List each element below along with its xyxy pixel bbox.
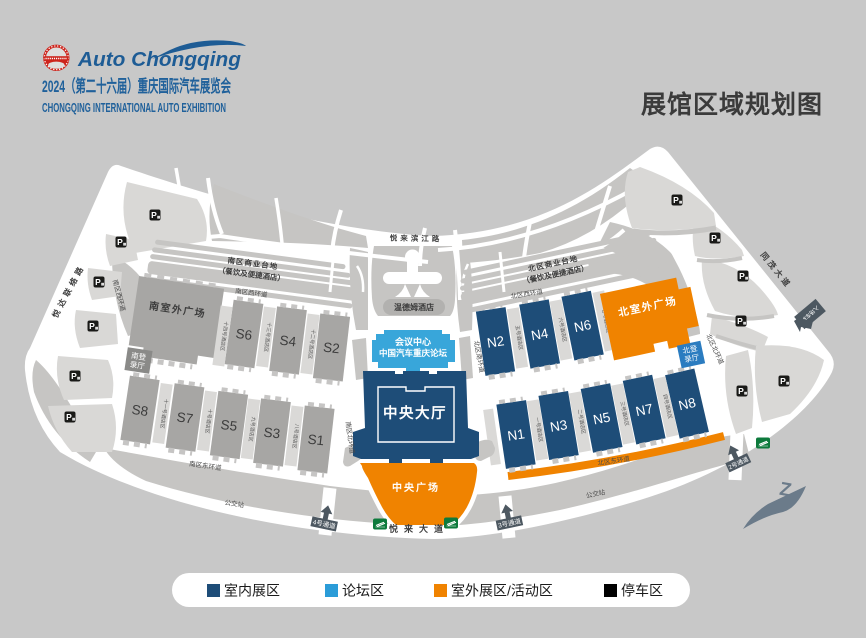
svg-text:Auto Chongqing: Auto Chongqing — [77, 49, 241, 71]
svg-text:CHONGQING INTERNATIONAL AUTO E: CHONGQING INTERNATIONAL AUTO EXHIBITION — [42, 101, 226, 115]
svg-text:2024（第二十六届）重庆国际汽车展览会: 2024（第二十六届）重庆国际汽车展览会 — [42, 76, 231, 96]
svg-text:S4: S4 — [279, 333, 298, 350]
svg-text:停车区: 停车区 — [621, 583, 663, 599]
svg-text:N1: N1 — [506, 426, 525, 443]
svg-text:S7: S7 — [176, 409, 194, 426]
svg-text:S5: S5 — [220, 417, 238, 434]
svg-text:S3: S3 — [263, 425, 281, 442]
svg-text:N3: N3 — [549, 417, 569, 435]
svg-text:S8: S8 — [131, 402, 150, 419]
svg-text:室外展区/活动区: 室外展区/活动区 — [451, 583, 553, 599]
svg-text:展馆区域规划图: 展馆区域规划图 — [641, 90, 823, 119]
svg-text:S6: S6 — [235, 326, 253, 343]
svg-text:中央广场: 中央广场 — [392, 481, 440, 494]
svg-text:N4: N4 — [530, 326, 550, 344]
svg-text:悦来滨江路: 悦来滨江路 — [390, 233, 443, 244]
svg-text:N2: N2 — [486, 333, 505, 350]
svg-text:中国汽车重庆论坛: 中国汽车重庆论坛 — [379, 348, 448, 358]
svg-text:中央大厅: 中央大厅 — [383, 404, 447, 422]
svg-text:会议中心: 会议中心 — [395, 336, 431, 347]
svg-text:温德姆酒店: 温德姆酒店 — [394, 302, 434, 312]
svg-text:论坛区: 论坛区 — [342, 583, 384, 599]
svg-text:室内展区: 室内展区 — [224, 583, 280, 599]
svg-text:S1: S1 — [307, 432, 325, 449]
svg-text:S2: S2 — [322, 340, 340, 357]
svg-text:悦来大道: 悦来大道 — [389, 523, 449, 534]
